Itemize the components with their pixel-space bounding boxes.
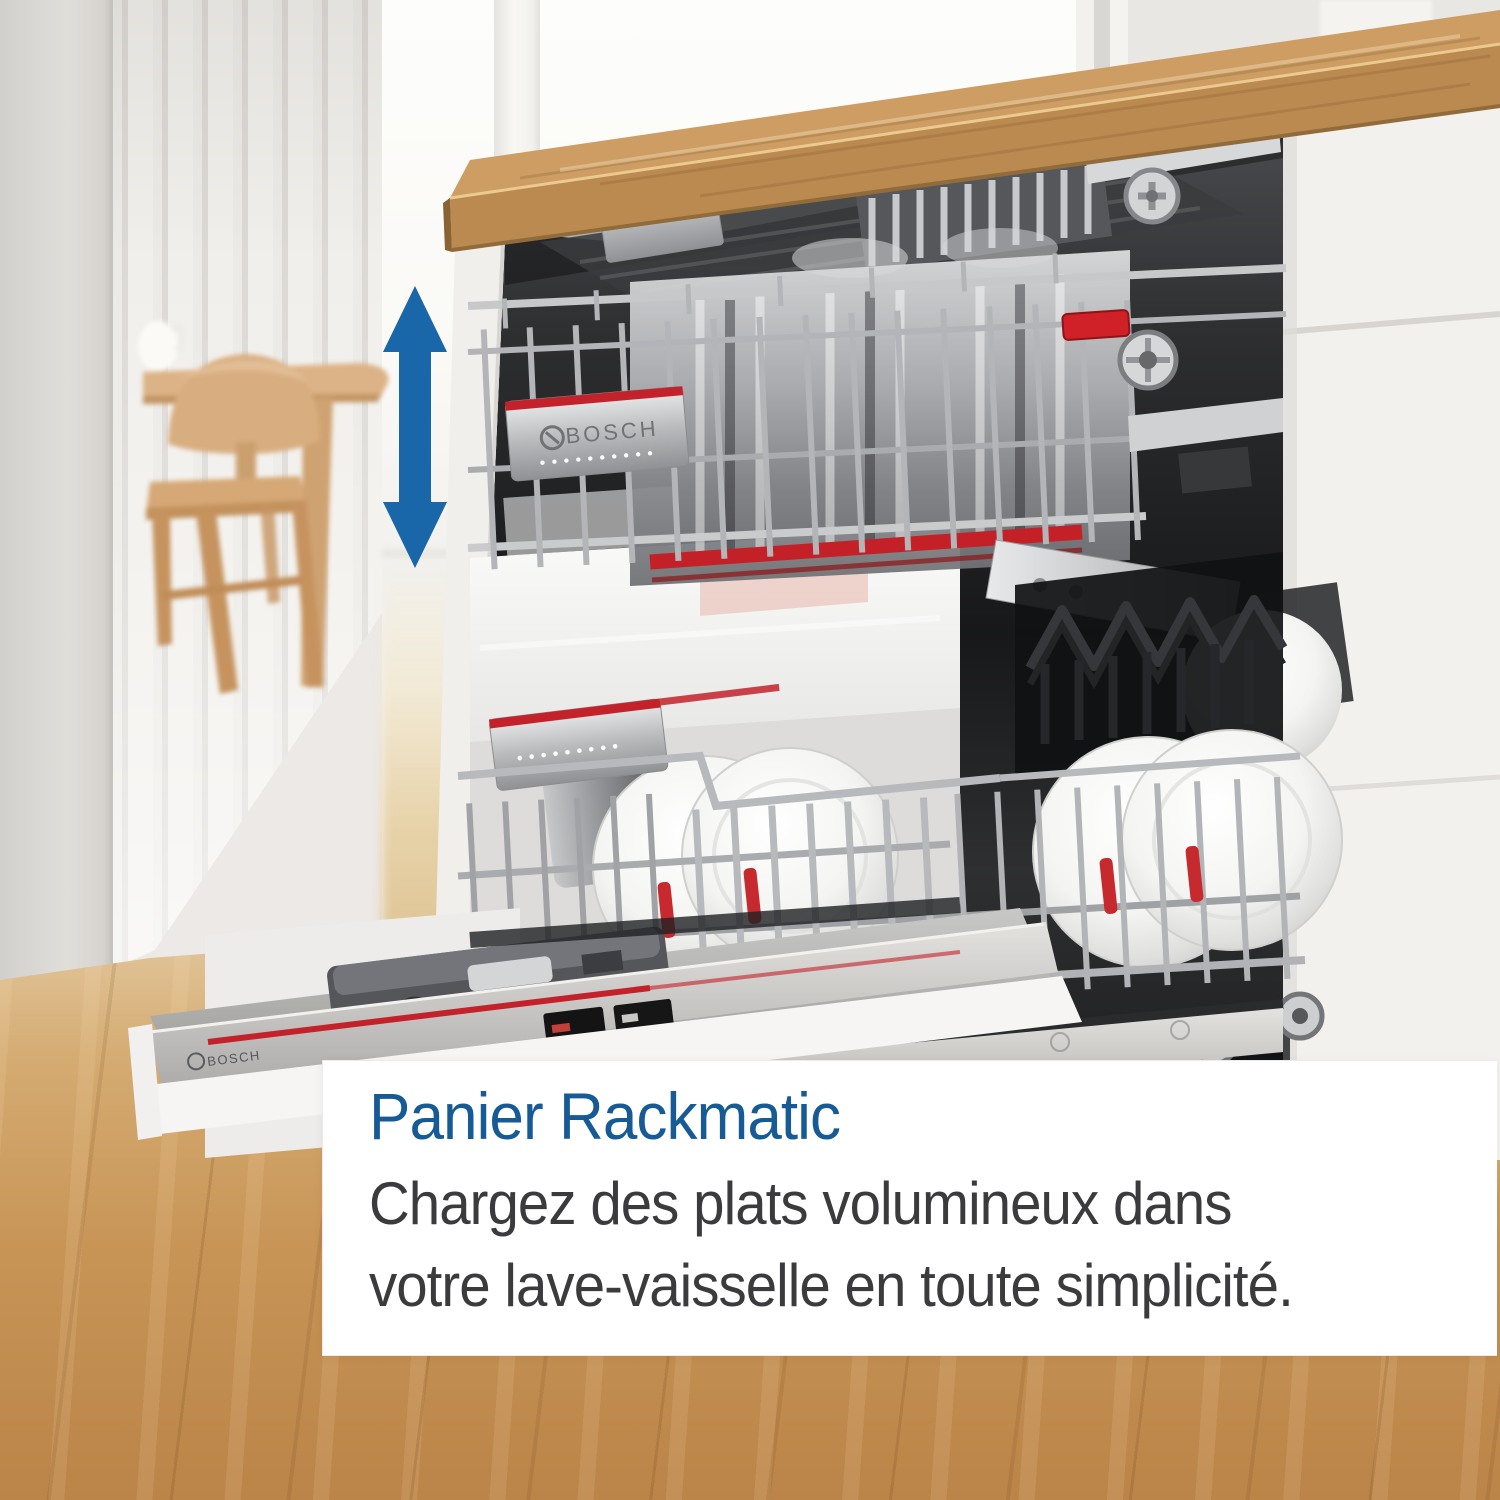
feature-title: Panier Rackmatic	[369, 1079, 840, 1153]
vertical-double-arrow-icon	[383, 286, 447, 568]
description-line-1: Chargez des plats volumineux dans	[369, 1163, 1231, 1245]
rack-handle-bosch: BOSCH	[505, 386, 689, 481]
description-line-2: votre lave-vaisselle en toute simplicité…	[369, 1245, 1293, 1327]
feature-caption-box: Panier Rackmatic Chargez des plats volum…	[322, 1060, 1497, 1356]
feature-description: Chargez des plats volumineux dans votre …	[369, 1163, 1487, 1327]
product-feature-image: BOSCH	[0, 0, 1500, 1500]
